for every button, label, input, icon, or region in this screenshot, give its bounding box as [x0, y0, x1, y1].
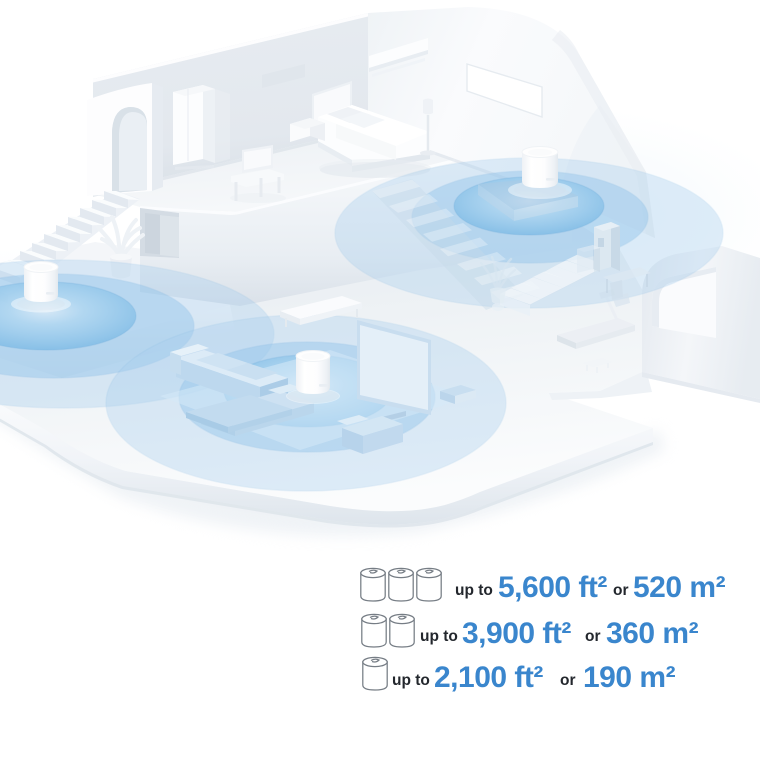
svg-text:or: or [560, 672, 576, 689]
svg-text:2,100 ft²: 2,100 ft² [434, 661, 543, 694]
svg-text:or: or [585, 628, 601, 645]
svg-text:or: or [613, 582, 629, 599]
svg-text:5,600 ft²: 5,600 ft² [498, 571, 607, 604]
svg-text:190 m²: 190 m² [583, 661, 676, 694]
svg-text:up to: up to [392, 672, 430, 689]
svg-text:3,900 ft²: 3,900 ft² [462, 617, 571, 650]
svg-text:360 m²: 360 m² [606, 617, 699, 650]
svg-text:up to: up to [455, 582, 493, 599]
svg-text:up to: up to [420, 628, 458, 645]
svg-text:520 m²: 520 m² [633, 571, 726, 604]
